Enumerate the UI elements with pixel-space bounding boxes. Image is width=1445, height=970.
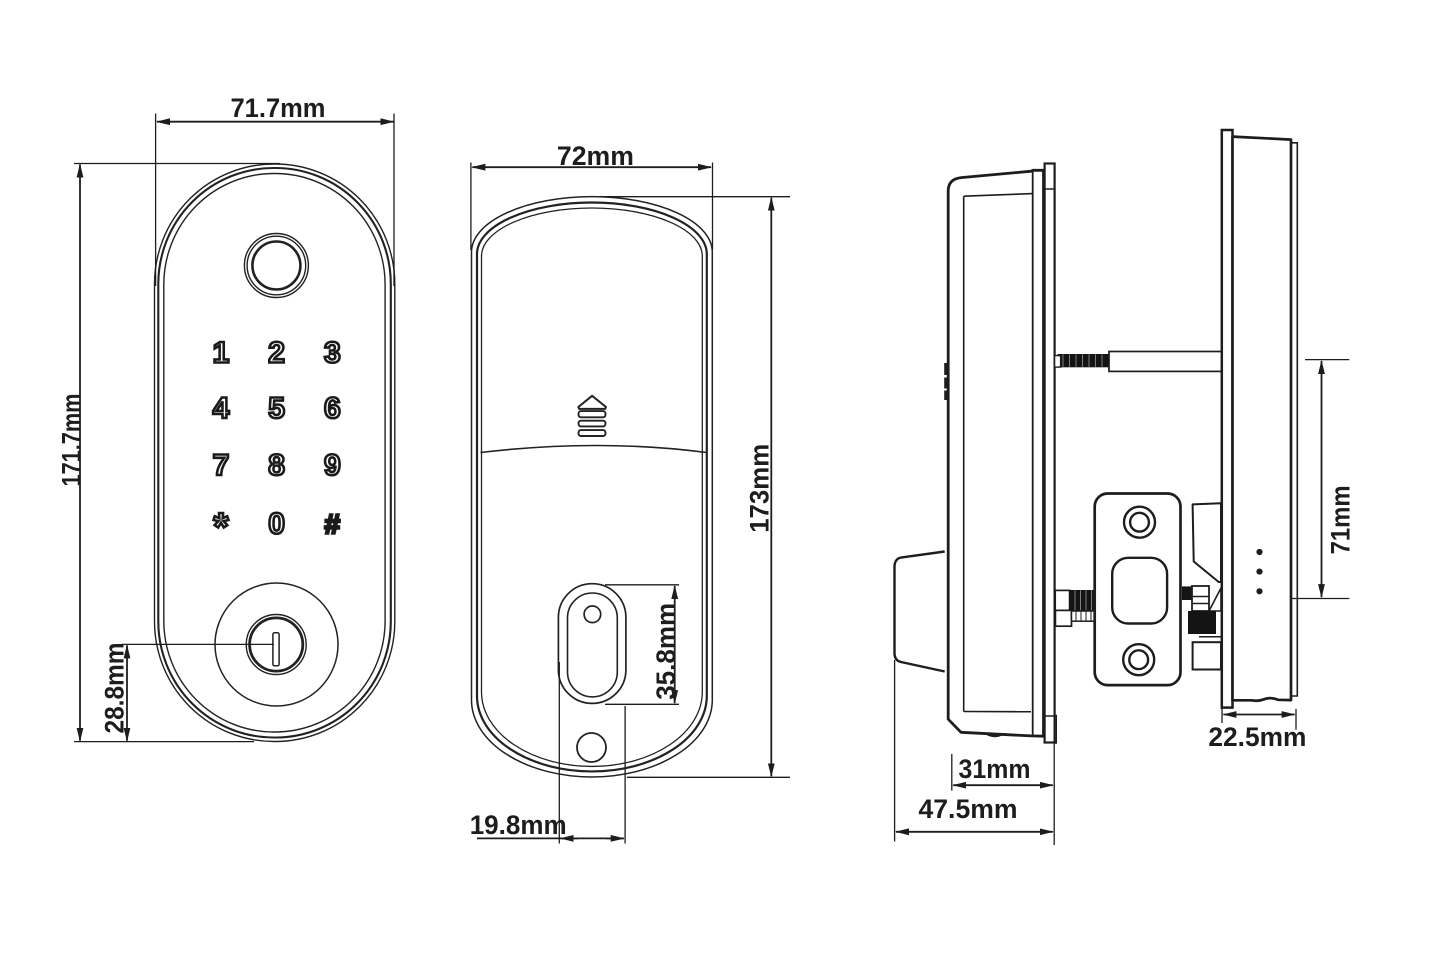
svg-text:171.7mm: 171.7mm — [57, 394, 87, 487]
svg-text:5: 5 — [268, 392, 285, 425]
svg-text:31mm: 31mm — [959, 754, 1031, 784]
svg-text:2: 2 — [268, 337, 285, 370]
svg-text:4: 4 — [213, 392, 230, 425]
svg-text:71mm: 71mm — [1326, 485, 1356, 554]
svg-text:6: 6 — [324, 392, 341, 425]
svg-text:19.8mm: 19.8mm — [470, 810, 567, 840]
svg-text:22.5mm: 22.5mm — [1208, 722, 1306, 752]
svg-text:173mm: 173mm — [745, 444, 775, 533]
svg-text:*: * — [213, 506, 229, 549]
svg-text:9: 9 — [324, 449, 341, 482]
svg-text:0: 0 — [268, 507, 285, 540]
svg-text:35.8mm: 35.8mm — [651, 603, 681, 700]
svg-text:47.5mm: 47.5mm — [919, 794, 1018, 824]
svg-text:28.8mm: 28.8mm — [100, 643, 130, 734]
svg-text:#: # — [325, 509, 341, 540]
svg-text:7: 7 — [213, 449, 230, 482]
svg-text:8: 8 — [268, 449, 285, 482]
svg-text:71.7mm: 71.7mm — [231, 93, 326, 123]
svg-text:1: 1 — [213, 337, 230, 370]
svg-text:72mm: 72mm — [557, 141, 634, 171]
svg-text:3: 3 — [324, 337, 341, 370]
